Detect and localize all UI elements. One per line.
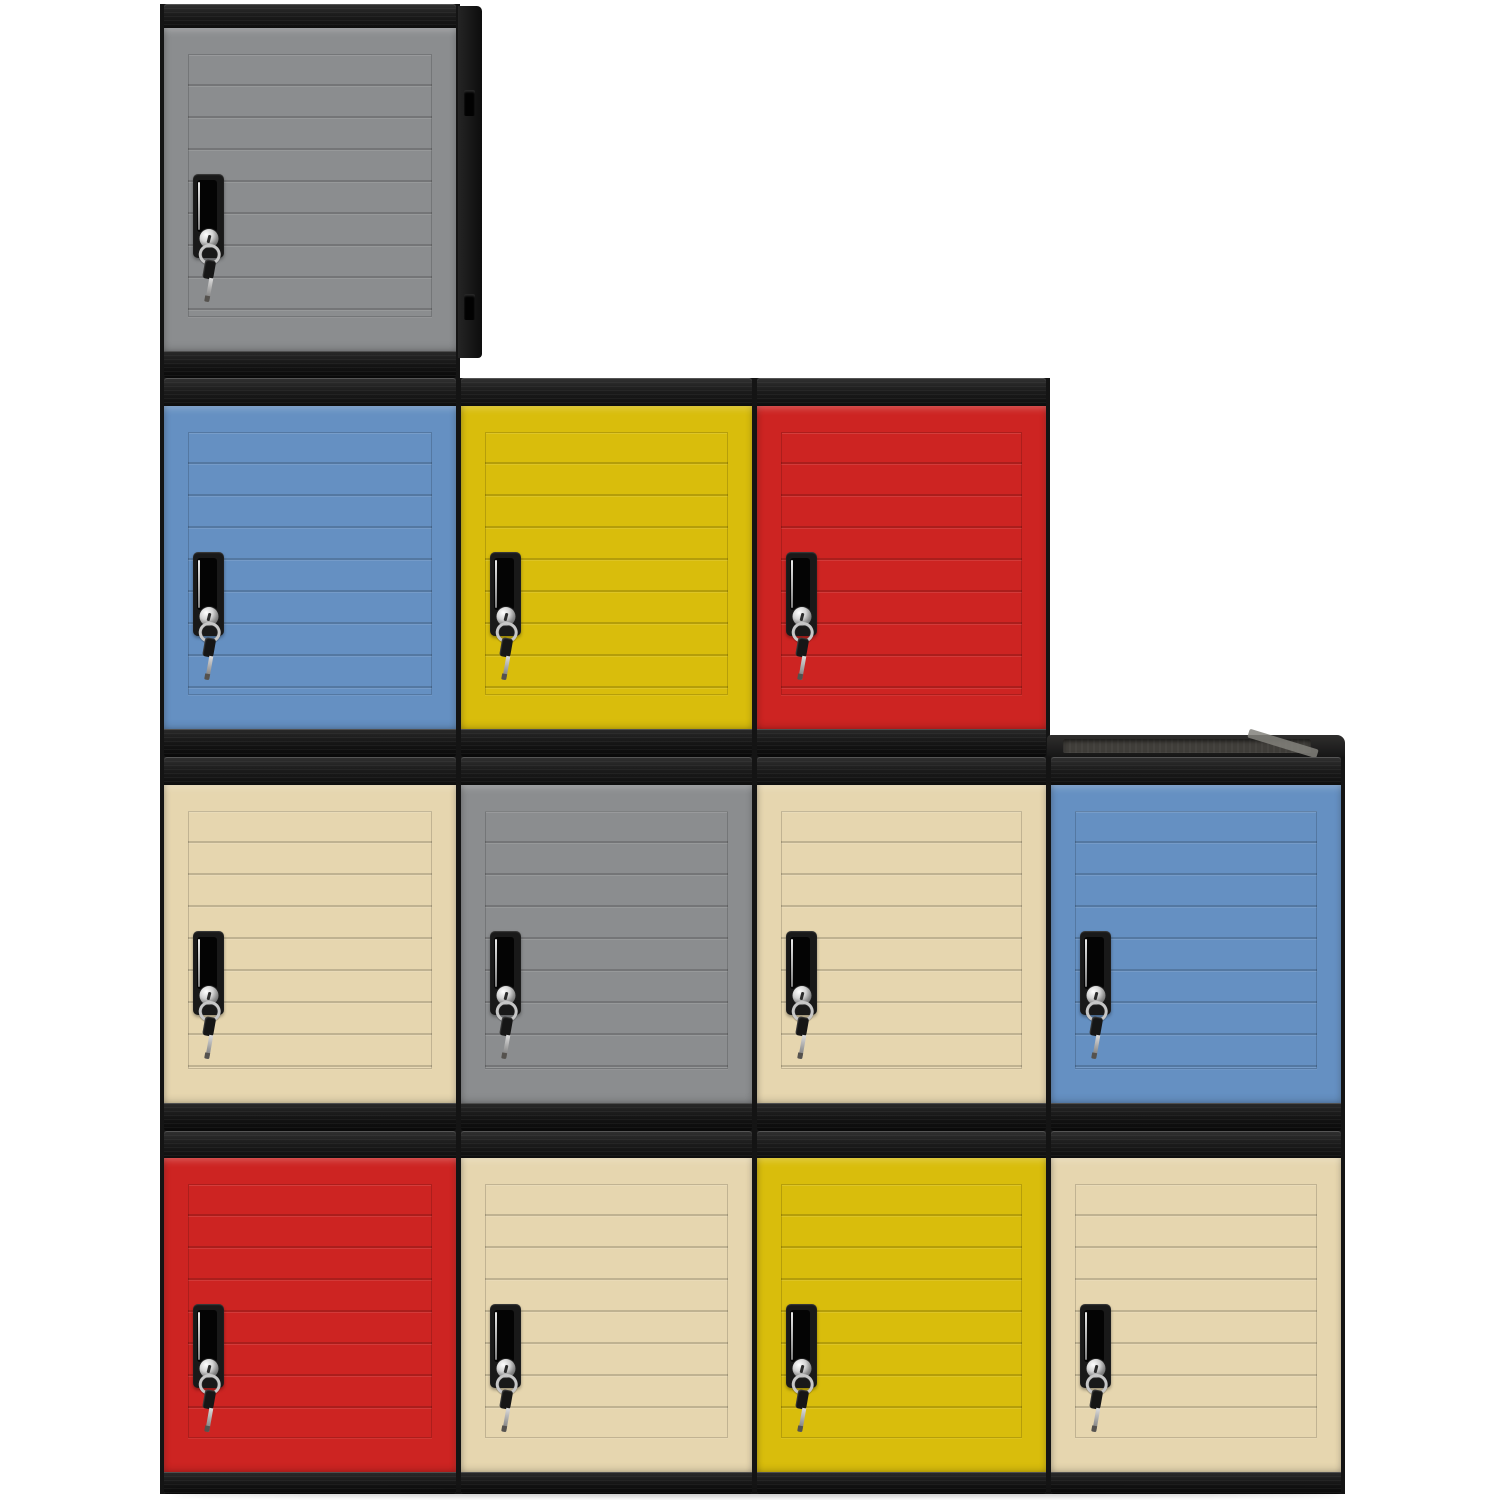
locker-top-cap <box>1051 1131 1341 1158</box>
lock-handle-recess <box>1084 937 1104 989</box>
locker-door <box>164 406 456 729</box>
lock-handle-recess <box>197 558 217 610</box>
lock-handle-recess <box>790 1310 810 1362</box>
locker-stack-photo <box>0 0 1500 1500</box>
key-head <box>795 637 809 658</box>
door-groove-panel <box>485 432 728 695</box>
key-assembly <box>195 1373 226 1445</box>
locker-top-cap <box>164 1131 456 1158</box>
key-blade <box>1092 1035 1100 1059</box>
locker-r4c3-yellow <box>757 1131 1046 1494</box>
locker-r3c2-gray <box>461 757 752 1131</box>
key-head <box>202 1016 216 1037</box>
key-head <box>202 637 216 658</box>
key-assembly <box>492 621 523 693</box>
key-blade <box>1092 1408 1100 1432</box>
key-head <box>499 1016 513 1037</box>
locker-door <box>461 406 752 729</box>
lock-handle-recess <box>197 180 217 232</box>
lock-handle-recess <box>1084 1310 1104 1362</box>
locker-top-cap <box>1051 757 1341 785</box>
locker-top-cap <box>757 757 1046 785</box>
side-vent-notch <box>464 90 475 116</box>
locker-bottom-cap <box>164 1103 456 1131</box>
key-head <box>202 259 216 280</box>
key-assembly <box>195 621 226 693</box>
locker-top-cap <box>164 378 456 406</box>
side-vent-notch <box>464 294 475 320</box>
locker-top-cap <box>757 378 1046 406</box>
door-groove-panel <box>485 1184 728 1438</box>
key-blade <box>798 656 806 680</box>
locker-door <box>1051 785 1341 1103</box>
locker-door <box>757 1158 1046 1472</box>
key-blade <box>205 1408 213 1432</box>
key-assembly <box>1082 1373 1113 1445</box>
key-head <box>795 1389 809 1410</box>
key-head <box>795 1016 809 1037</box>
key-assembly <box>195 243 226 315</box>
key-assembly <box>492 1373 523 1445</box>
locker-top-cap <box>164 4 456 28</box>
door-groove-panel <box>1075 811 1317 1069</box>
locker-door <box>164 28 456 351</box>
locker-door <box>461 1158 752 1472</box>
key-head <box>499 1389 513 1410</box>
key-blade <box>502 1035 510 1059</box>
key-assembly <box>492 1000 523 1072</box>
lock-handle-recess <box>197 937 217 989</box>
key-blade <box>798 1035 806 1059</box>
locker-bottom-cap <box>164 351 456 378</box>
floor-shadow <box>172 1491 1340 1496</box>
key-blade <box>502 656 510 680</box>
lock-handle-recess <box>790 558 810 610</box>
key-blade <box>798 1408 806 1432</box>
door-groove-panel <box>188 811 432 1069</box>
lock-handle-recess <box>197 1310 217 1362</box>
key-blade <box>205 1035 213 1059</box>
locker-bottom-cap <box>461 1103 752 1131</box>
locker-r3c3-beige <box>757 757 1046 1131</box>
locker-door <box>164 785 456 1103</box>
key-head <box>1089 1389 1103 1410</box>
locker-r1c1-gray <box>164 4 456 378</box>
door-groove-panel <box>781 1184 1022 1438</box>
locker-bottom-cap <box>1051 1103 1341 1131</box>
lock-handle-recess <box>494 937 514 989</box>
locker-top-surface <box>1047 735 1345 757</box>
lock-handle-recess <box>494 1310 514 1362</box>
locker-r2c1-blue <box>164 378 456 757</box>
door-groove-panel <box>781 811 1022 1069</box>
locker-top-cap <box>461 378 752 406</box>
locker-top-cap <box>757 1131 1046 1158</box>
key-assembly <box>1082 1000 1113 1072</box>
key-head <box>1089 1016 1103 1037</box>
locker-top-cap <box>461 1131 752 1158</box>
key-head <box>499 637 513 658</box>
locker-door <box>1051 1158 1341 1472</box>
key-assembly <box>195 1000 226 1072</box>
locker-side-panel <box>458 6 482 358</box>
door-groove-panel <box>1075 1184 1317 1438</box>
locker-r2c2-yellow <box>461 378 752 757</box>
door-groove-panel <box>781 432 1022 695</box>
locker-door <box>164 1158 456 1472</box>
key-assembly <box>788 1373 819 1445</box>
locker-bottom-cap <box>164 729 456 757</box>
lock-handle-recess <box>790 937 810 989</box>
locker-r4c1-red <box>164 1131 456 1494</box>
door-groove-panel <box>188 54 432 317</box>
locker-r3c4-blue <box>1051 757 1341 1131</box>
locker-r4c4-beige <box>1051 1131 1341 1494</box>
lock-handle-recess <box>494 558 514 610</box>
key-blade <box>205 278 213 302</box>
key-blade <box>205 656 213 680</box>
locker-r2c3-red <box>757 378 1046 757</box>
locker-door <box>757 406 1046 729</box>
locker-door <box>461 785 752 1103</box>
locker-bottom-cap <box>757 729 1046 757</box>
key-blade <box>502 1408 510 1432</box>
locker-top-cap <box>164 757 456 785</box>
door-groove-panel <box>188 432 432 695</box>
key-head <box>202 1389 216 1410</box>
locker-bottom-cap <box>461 729 752 757</box>
locker-r4c2-beige <box>461 1131 752 1494</box>
door-groove-panel <box>485 811 728 1069</box>
key-assembly <box>788 621 819 693</box>
locker-door <box>757 785 1046 1103</box>
door-groove-panel <box>188 1184 432 1438</box>
locker-r3c1-beige <box>164 757 456 1131</box>
locker-bottom-cap <box>757 1103 1046 1131</box>
key-assembly <box>788 1000 819 1072</box>
locker-top-cap <box>461 757 752 785</box>
